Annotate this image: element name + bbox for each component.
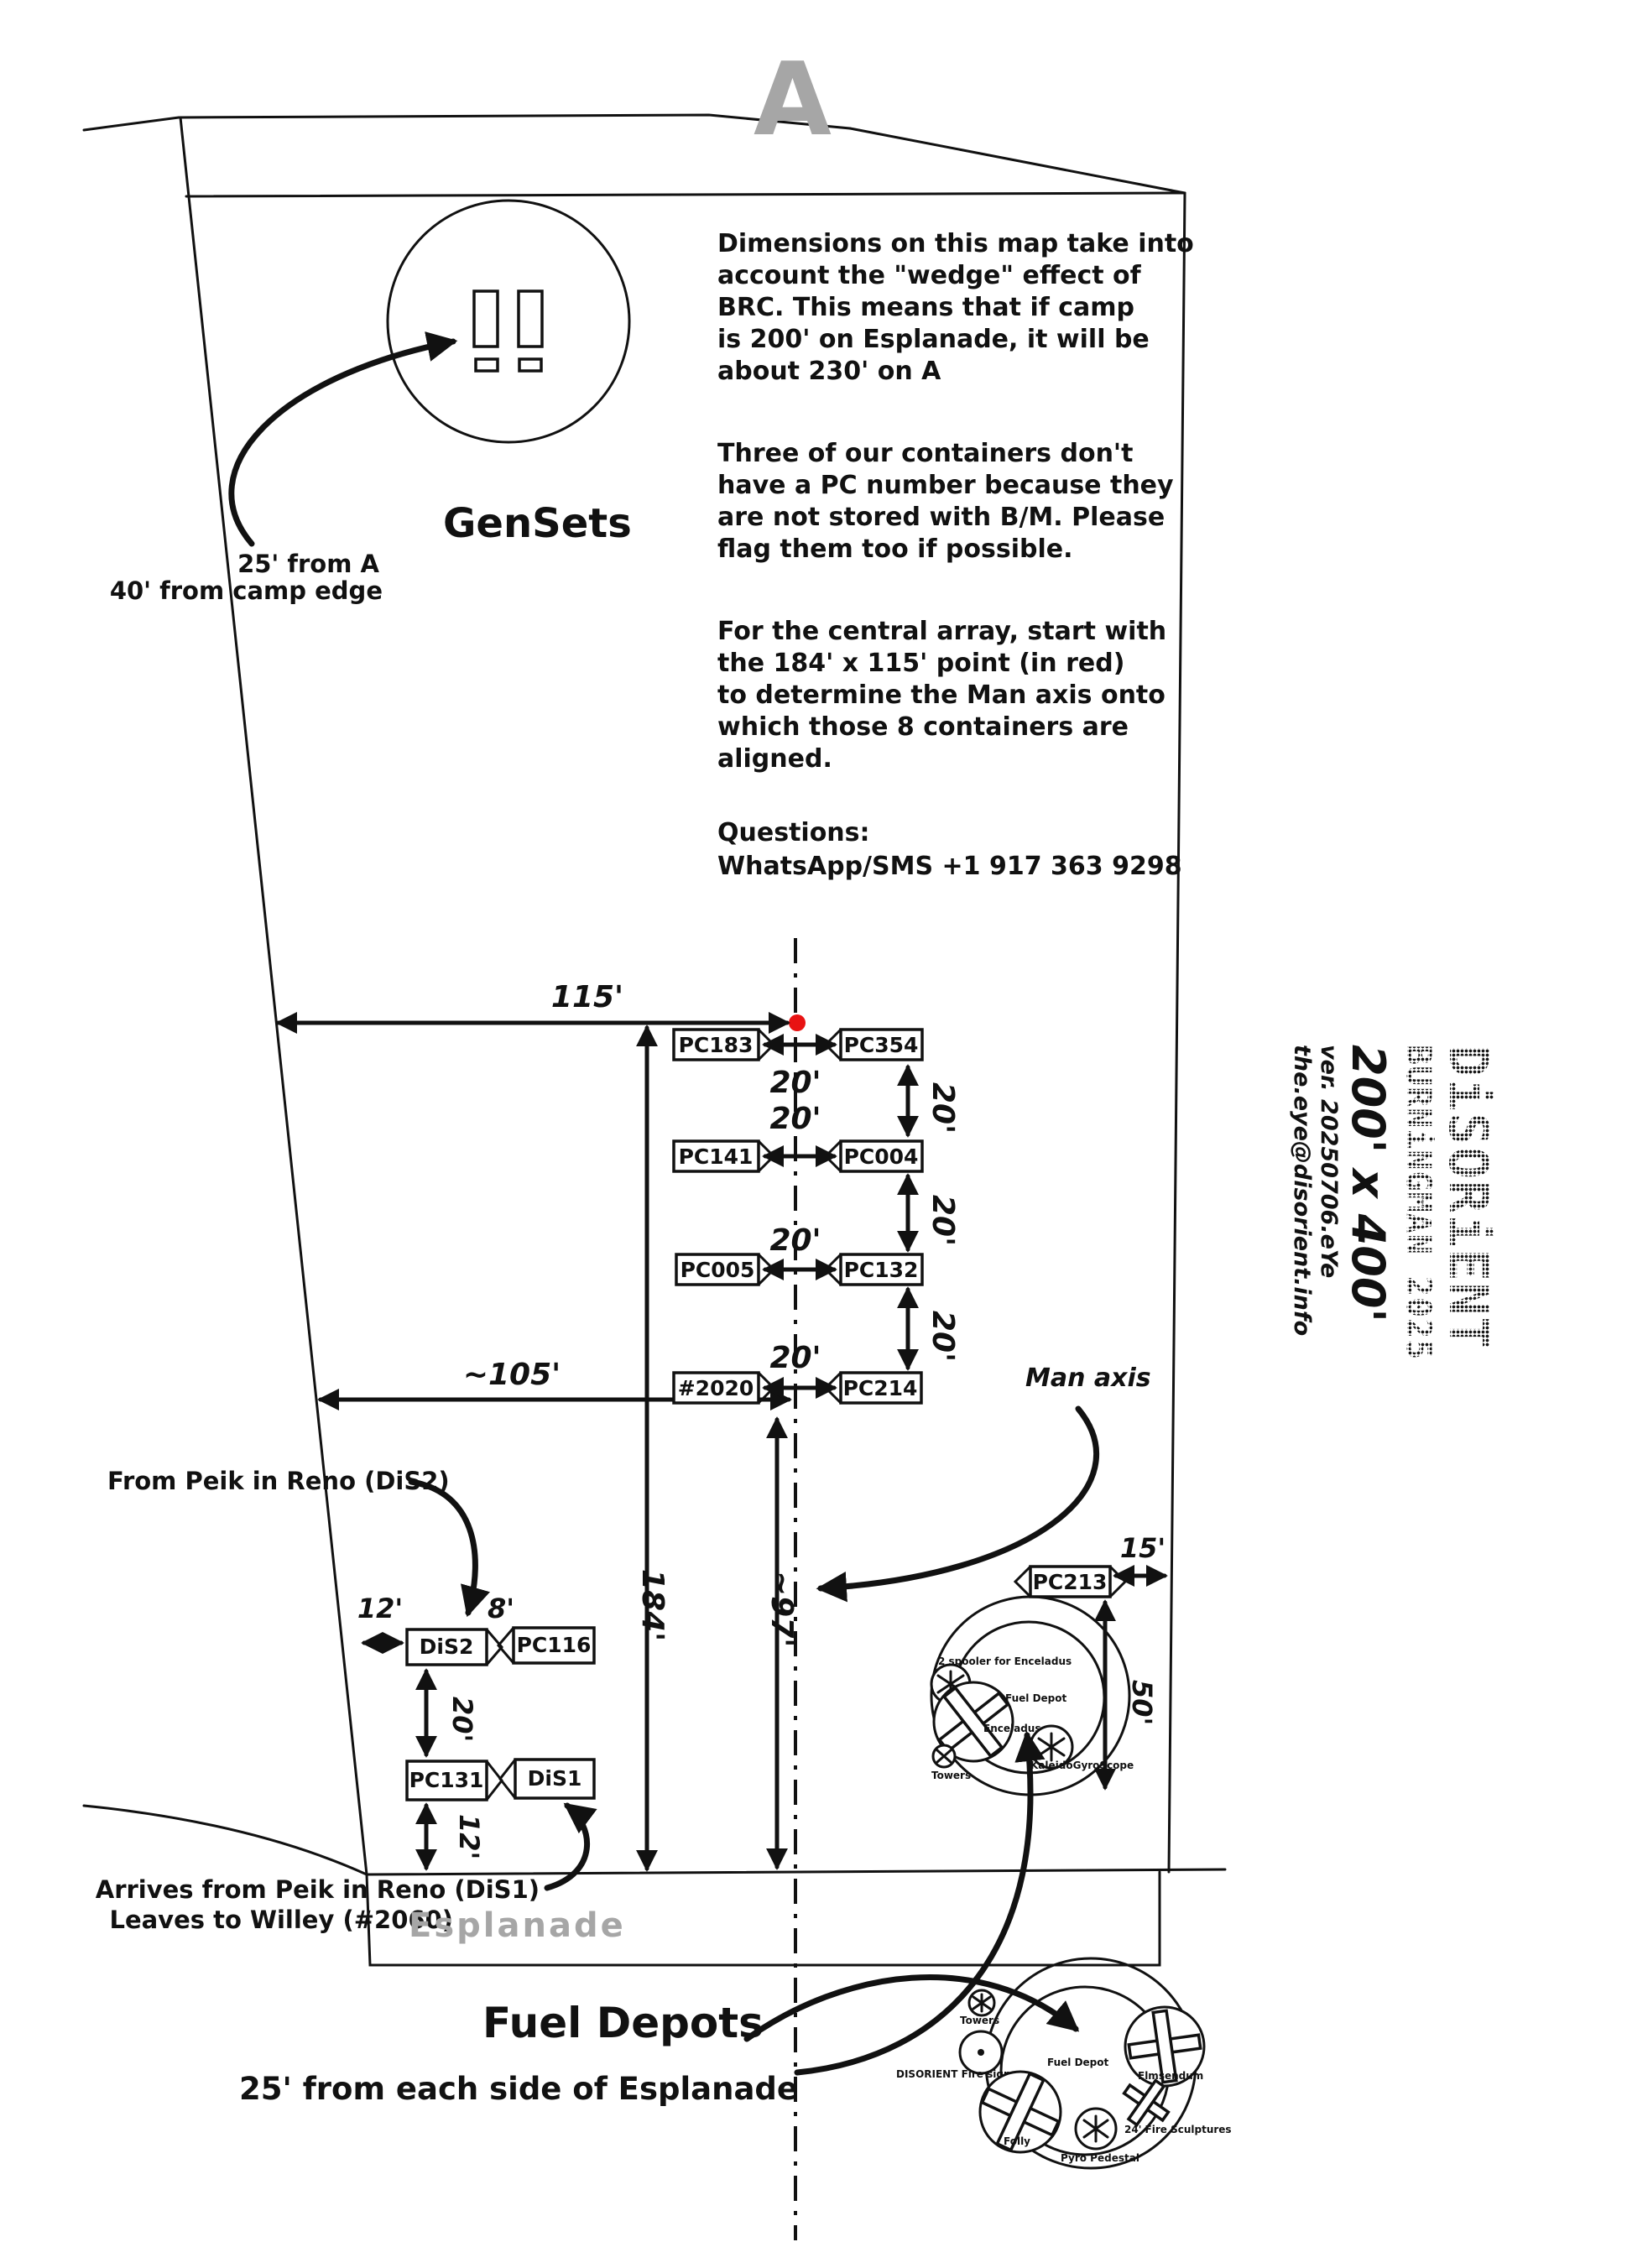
gap-label-row2: 20' — [769, 1102, 821, 1136]
arrives-label-1: Arrives from Peik in Reno (DiS1) — [96, 1875, 540, 1904]
camp-right-edge — [1169, 193, 1185, 1872]
genset-small-2 — [519, 359, 541, 371]
from-peik-pointer-arrow — [411, 1482, 475, 1613]
svg-text:DiS1: DiS1 — [528, 1766, 582, 1791]
camp-map-page: A GenSets 25' from A 40' from camp edge … — [0, 0, 1627, 2268]
svg-text:PC213: PC213 — [1033, 1570, 1108, 1594]
fire-sign-dot-icon — [978, 2049, 984, 2056]
container-pc132: PC132 — [826, 1254, 922, 1285]
questions-label: Questions: — [717, 818, 870, 847]
container-pc116: PC116 — [498, 1628, 594, 1663]
esplanade-label: Esplanade — [409, 1906, 626, 1945]
version-label: ver. 20250706.eYe — [1315, 1045, 1342, 1464]
gap-label-row3: 20' — [769, 1223, 821, 1258]
svg-text:PC354: PC354 — [844, 1033, 919, 1057]
container-pc004: PC004 — [826, 1141, 922, 1171]
container-pc354: PC354 — [826, 1030, 922, 1060]
note-line: account the "wedge" effect of — [717, 261, 1142, 290]
dim-184-label: 184' — [635, 1569, 670, 1641]
note-line: which those 8 containers are — [717, 712, 1129, 742]
svg-text:DiS2: DiS2 — [420, 1635, 474, 1659]
container-pc183: PC183 — [674, 1030, 774, 1060]
note-line: is 200' on Esplanade, it will be — [717, 325, 1150, 354]
note-line: aligned. — [717, 744, 832, 774]
gensets-line1: 25' from A — [237, 550, 379, 578]
camp-top-edge — [186, 193, 1185, 196]
svg-text:PC005: PC005 — [681, 1258, 755, 1282]
from-peik-label: From Peik in Reno (DiS2) — [107, 1467, 450, 1495]
note-line: Dimensions on this map take into — [717, 229, 1194, 258]
fire-sculptures-label: 24' Fire Sculptures — [1124, 2124, 1232, 2135]
genset-small-1 — [476, 359, 498, 371]
fire-sign-label: DISORIENT Fire sign — [896, 2068, 1011, 2080]
top-right-edge — [850, 128, 1185, 193]
right-depot-group: PC213 15' 50' 2 spooler for Enceladus Fu… — [931, 1532, 1165, 1795]
dimensions: 115' 184' ~105' ~97' 20' 20' 20' 20' 20'… — [279, 980, 960, 1869]
dim-50-label: 50' — [1126, 1680, 1158, 1725]
gap-label-v3: 20' — [926, 1311, 960, 1362]
dim-12-top-label: 12' — [357, 1593, 403, 1624]
arrives-label-2: Leaves to Willey (#2060) — [109, 1906, 453, 1934]
dim-15-label: 15' — [1120, 1532, 1165, 1564]
man-axis-label: Man axis — [1025, 1363, 1151, 1393]
man-axis-pointer-arrow — [821, 1409, 1097, 1588]
bottom-depot-group: Towers DISORIENT Fire sign Fuel Depot Fo… — [896, 1958, 1232, 2168]
pyro-label: Pyro Pedestal — [1061, 2152, 1139, 2164]
gap-label-row4: 20' — [769, 1341, 821, 1375]
notes-block: Dimensions on this map take into account… — [717, 229, 1194, 881]
gensets-title: GenSets — [443, 500, 632, 547]
note-line: to determine the Man axis onto — [717, 680, 1165, 710]
camp-outline — [84, 115, 1225, 1965]
dim-105-label: ~105' — [463, 1358, 561, 1392]
logo-block: DiSORiENT BURNiNGMAN 2025 200' x 400' ve… — [1288, 1045, 1498, 1464]
container-pc131: PC131 — [407, 1761, 502, 1800]
gap-label-v1: 20' — [926, 1082, 960, 1134]
svg-text:#2020: #2020 — [678, 1376, 754, 1400]
street-a-letter: A — [754, 42, 832, 159]
note-line: For the central array, start with — [717, 617, 1166, 646]
container-dis1: DiS1 — [500, 1760, 594, 1798]
note-line: flag them too if possible. — [717, 534, 1073, 564]
note-line: are not stored with B/M. Please — [717, 503, 1165, 532]
towers-top-label: Towers — [931, 1770, 971, 1781]
event-wordmark: BURNiNGMAN 2025 — [1399, 1045, 1437, 1464]
svg-text:PC131: PC131 — [409, 1768, 484, 1792]
note-line: about 230' on A — [717, 357, 941, 386]
questions-phone: WhatsApp/SMS +1 917 363 9298 — [717, 852, 1182, 881]
dim-115-label: 115' — [551, 980, 623, 1014]
svg-text:PC214: PC214 — [843, 1376, 918, 1400]
fuel-depots-title: Fuel Depots — [482, 1999, 764, 2047]
svg-text:PC004: PC004 — [844, 1144, 919, 1169]
gensets-pointer-arrow — [232, 342, 453, 544]
fuel-depot-top-label: Fuel Depot — [1005, 1692, 1067, 1704]
brand-wordmark: DiSORiENT — [1437, 1045, 1498, 1464]
gap-label-row1: 20' — [769, 1066, 821, 1100]
svg-text:PC116: PC116 — [517, 1633, 592, 1657]
genset-unit-1 — [474, 291, 498, 347]
note-line: BRC. This means that if camp — [717, 293, 1134, 322]
a-street-line — [84, 115, 850, 130]
svg-text:PC141: PC141 — [679, 1144, 754, 1169]
dim-12-bottom-label: 12' — [453, 1814, 485, 1859]
container-pc213: PC213 — [1015, 1567, 1125, 1597]
dim-8-label: 8' — [488, 1593, 514, 1624]
container-pc005: PC005 — [676, 1254, 774, 1285]
enceladus-label: Enceladus — [983, 1723, 1040, 1734]
esplanade-top-line — [84, 1806, 1225, 1874]
towers-bottom-label: Towers — [960, 2015, 999, 2026]
arrives-pointer-arrow — [547, 1806, 587, 1888]
red-reference-point — [789, 1014, 806, 1031]
camp-size-label: 200' x 400' — [1342, 1045, 1394, 1464]
svg-text:PC132: PC132 — [844, 1258, 919, 1282]
gap-label-v2: 20' — [926, 1195, 960, 1246]
svg-text:PC183: PC183 — [679, 1033, 754, 1057]
folly-label: Folly — [1004, 2135, 1030, 2147]
camp-left-edge — [180, 117, 367, 1874]
contact-email: the.eye@disorient.info — [1288, 1045, 1315, 1464]
container-pc141: PC141 — [674, 1141, 774, 1171]
container-pc214: PC214 — [826, 1373, 921, 1403]
kaleido-label: KaleidoGyroScope — [1030, 1760, 1134, 1771]
note-line: the 184' x 115' point (in red) — [717, 649, 1124, 678]
note-line: have a PC number because they — [717, 471, 1174, 500]
dim-20-left-label: 20' — [446, 1697, 478, 1742]
container-dis2: DiS2 — [407, 1629, 502, 1665]
dim-97-label: ~97' — [764, 1571, 799, 1647]
gensets-line2: 40' from camp edge — [110, 576, 383, 605]
genset-unit-2 — [519, 291, 542, 347]
note-line: Three of our containers don't — [717, 439, 1133, 468]
gensets-group: GenSets 25' from A 40' from camp edge — [110, 201, 632, 605]
elmsendum-label: Elmsendum — [1138, 2070, 1203, 2082]
fuel-depot-bottom-label: Fuel Depot — [1047, 2057, 1109, 2068]
gensets-circle — [388, 201, 629, 442]
fuel-depots-subtitle: 25' from each side of Esplanade — [239, 2071, 798, 2107]
container-2020: #2020 — [674, 1373, 774, 1403]
